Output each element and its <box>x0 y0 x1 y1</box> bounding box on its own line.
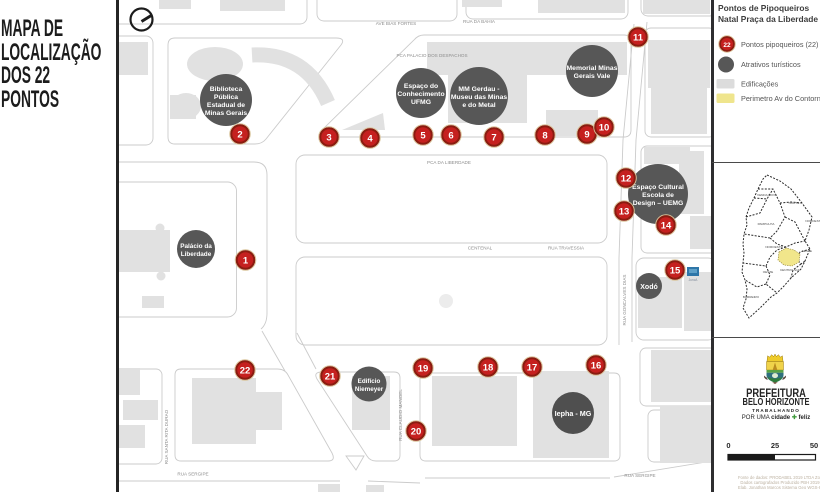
svg-text:PCA PALACIO DOS DESPACHOS: PCA PALACIO DOS DESPACHOS <box>396 53 467 58</box>
svg-text:VENDA NOVA: VENDA NOVA <box>757 193 778 197</box>
svg-text:CENTENAL: CENTENAL <box>468 246 493 251</box>
svg-text:JuncA: JuncA <box>689 278 699 282</box>
svg-text:22: 22 <box>240 365 251 376</box>
svg-text:1: 1 <box>243 255 249 266</box>
svg-text:Estadual de: Estadual de <box>207 102 245 109</box>
svg-text:0: 0 <box>726 441 730 450</box>
svg-text:Atrativos turísticos: Atrativos turísticos <box>741 60 801 69</box>
svg-text:PAMPULHA: PAMPULHA <box>758 222 776 226</box>
svg-text:Pontos pipoqueiros (22): Pontos pipoqueiros (22) <box>741 40 818 49</box>
svg-text:20: 20 <box>411 426 422 437</box>
svg-text:NOROESTE: NOROESTE <box>765 245 782 249</box>
svg-text:OESTE: OESTE <box>763 270 774 274</box>
svg-text:NORTE: NORTE <box>789 201 800 205</box>
svg-text:17: 17 <box>527 362 538 373</box>
svg-text:5: 5 <box>420 130 426 141</box>
svg-text:RUA SERGIPE: RUA SERGIPE <box>177 472 208 477</box>
svg-text:Memorial Minas: Memorial Minas <box>567 65 618 72</box>
svg-text:19: 19 <box>418 363 429 374</box>
svg-text:Gerais Vale: Gerais Vale <box>574 73 611 80</box>
svg-text:12: 12 <box>621 173 632 184</box>
svg-text:e do Metal: e do Metal <box>462 102 495 109</box>
svg-text:Espaço do: Espaço do <box>404 83 438 90</box>
svg-text:Biblioteca: Biblioteca <box>210 86 243 93</box>
svg-text:16: 16 <box>591 360 602 371</box>
svg-text:Conhecimento: Conhecimento <box>397 91 444 98</box>
svg-text:50: 50 <box>810 441 818 450</box>
svg-text:18: 18 <box>483 362 494 373</box>
svg-text:PCA DA LIBERDADE: PCA DA LIBERDADE <box>427 160 471 165</box>
svg-text:MM Gerdau -: MM Gerdau - <box>458 86 499 93</box>
svg-text:UFMG: UFMG <box>411 99 431 106</box>
svg-text:8: 8 <box>542 130 547 141</box>
svg-text:RUA CLAUDIO MANOEL: RUA CLAUDIO MANOEL <box>398 389 403 441</box>
svg-text:Edificações: Edificações <box>741 80 779 89</box>
svg-text:Liberdade: Liberdade <box>181 251 212 258</box>
svg-text:LESTE: LESTE <box>802 249 812 253</box>
svg-text:RUA GONCALVES DIAS: RUA GONCALVES DIAS <box>622 275 627 326</box>
svg-text:Palácio da: Palácio da <box>180 243 212 250</box>
svg-text:RUA TRAVESSIA: RUA TRAVESSIA <box>548 246 585 251</box>
svg-text:7: 7 <box>491 132 496 143</box>
svg-text:13: 13 <box>619 206 630 217</box>
svg-text:25: 25 <box>771 441 779 450</box>
svg-text:BARREIRO: BARREIRO <box>743 295 760 299</box>
svg-text:CENTRO-SUL: CENTRO-SUL <box>780 268 800 272</box>
svg-text:15: 15 <box>670 265 681 276</box>
svg-text:10: 10 <box>599 122 610 133</box>
svg-text:11: 11 <box>633 32 644 43</box>
svg-text:NORDESTE: NORDESTE <box>805 219 820 223</box>
svg-text:Museu das Minas: Museu das Minas <box>451 94 507 101</box>
svg-text:2: 2 <box>237 129 242 140</box>
svg-text:6: 6 <box>448 130 453 141</box>
svg-text:22: 22 <box>723 42 731 49</box>
svg-text:AVE BIAS FORTES: AVE BIAS FORTES <box>376 21 416 26</box>
svg-text:RUA DA BAHIA: RUA DA BAHIA <box>463 19 496 24</box>
svg-text:Perimetro Av do Contorno: Perimetro Av do Contorno <box>741 94 820 103</box>
svg-text:21: 21 <box>325 371 336 382</box>
svg-text:Iepha - MG: Iepha - MG <box>555 409 592 418</box>
svg-text:Pública: Pública <box>214 94 238 101</box>
svg-text:Edifício: Edifício <box>358 378 381 385</box>
svg-text:9: 9 <box>584 129 589 140</box>
svg-text:4: 4 <box>367 133 373 144</box>
svg-text:Design – UEMG: Design – UEMG <box>633 200 684 207</box>
svg-text:Espaço Cultural: Espaço Cultural <box>632 184 684 191</box>
svg-text:3: 3 <box>326 132 331 143</box>
svg-text:Escola de: Escola de <box>642 192 674 199</box>
svg-text:Xodó: Xodó <box>640 284 658 291</box>
svg-text:Minas Gerais: Minas Gerais <box>205 110 248 117</box>
svg-text:Niemeyer: Niemeyer <box>355 386 384 393</box>
svg-text:RUA SANTA RITA DURAO: RUA SANTA RITA DURAO <box>164 409 169 464</box>
svg-text:RUA SERGIPE: RUA SERGIPE <box>624 473 655 478</box>
svg-text:14: 14 <box>661 220 672 231</box>
